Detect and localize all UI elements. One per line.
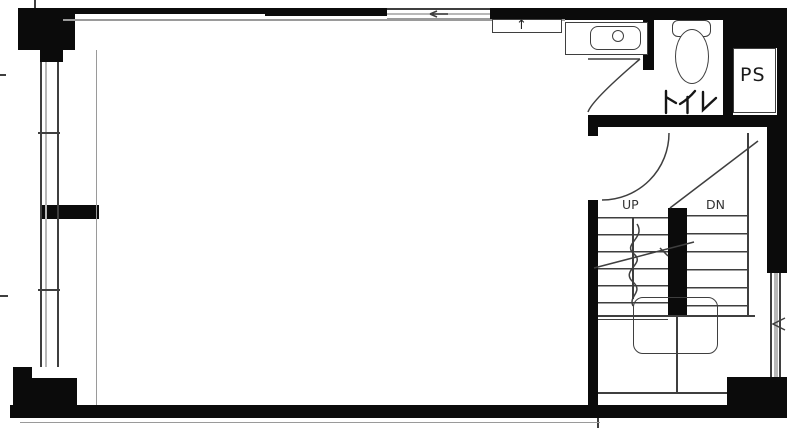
toilet-room-label [666,91,716,113]
linework-overlay [0,0,787,428]
stair-down-direction-line [670,141,758,208]
stair-break-squiggle [629,224,639,306]
window-slide-arrow-icon [430,11,448,17]
toilet-label-glyph-i [680,91,695,113]
toilet-door-arc [588,59,640,112]
toilet-label-glyph-to [666,91,676,113]
stairhall-door-arc [602,133,669,200]
stair-break-diagonal-line [594,242,694,268]
toilet-label-glyph-re [703,92,716,110]
floor-plan: ↑ PS UP DN [0,0,787,428]
right-window-tick-icon [773,318,785,330]
